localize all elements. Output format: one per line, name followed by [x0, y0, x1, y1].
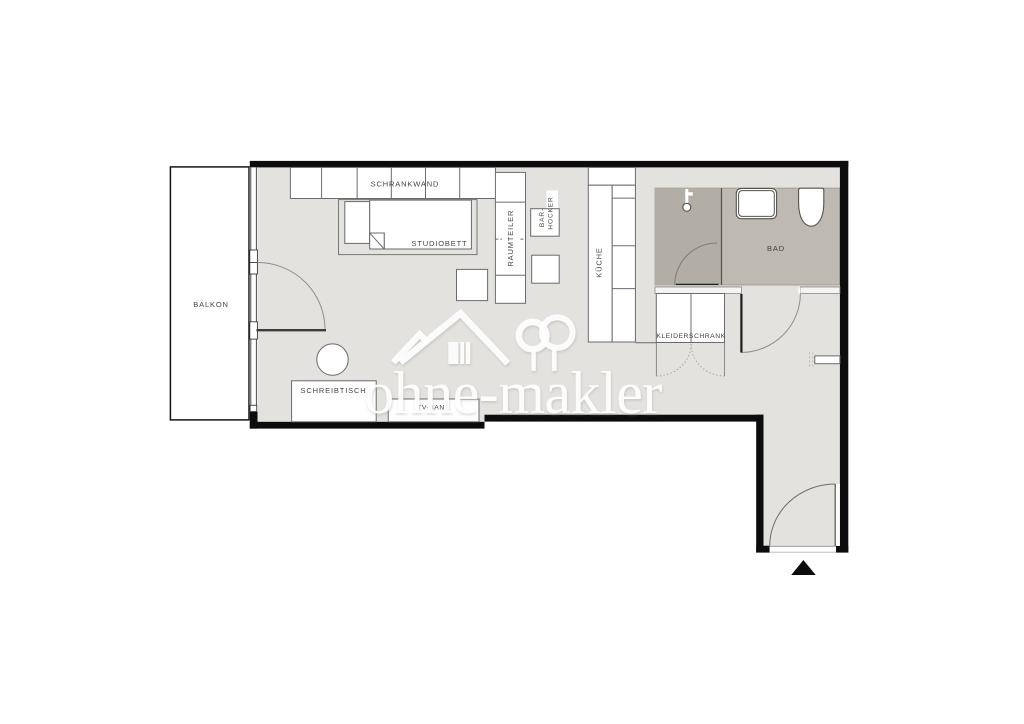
svg-text:ohne-makler: ohne-makler: [364, 360, 662, 426]
svg-text:BAR-: BAR-: [539, 208, 546, 227]
svg-text:STUDIOBETT: STUDIOBETT: [411, 239, 467, 248]
svg-text:SCHREIBTISCH: SCHREIBTISCH: [300, 386, 366, 395]
svg-text:BALKON: BALKON: [193, 300, 229, 309]
svg-text:BAD: BAD: [767, 244, 785, 253]
svg-text:RAUMTEILER: RAUMTEILER: [506, 210, 515, 267]
svg-text:HOCKER: HOCKER: [547, 196, 554, 229]
svg-text:KÜCHE: KÜCHE: [595, 247, 604, 278]
svg-text:KLEIDERSCHRANK: KLEIDERSCHRANK: [656, 333, 725, 340]
svg-text:SCHRANKWAND: SCHRANKWAND: [371, 180, 440, 189]
